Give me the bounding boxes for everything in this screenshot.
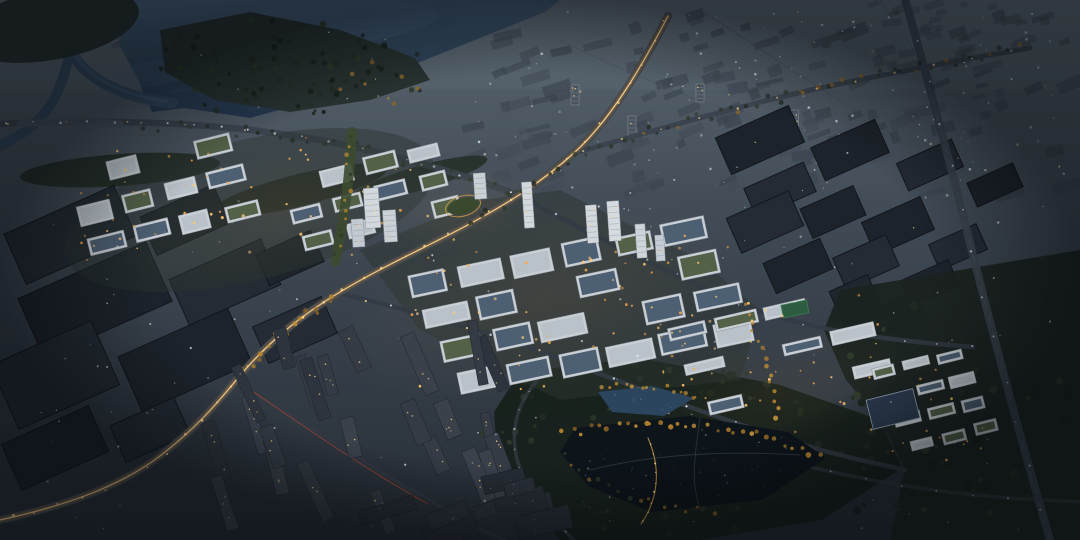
vignette-rect [0, 0, 1080, 540]
aerial-city-rendering [0, 0, 1080, 540]
aerial-render-canvas [0, 0, 1080, 540]
vignette [0, 0, 1080, 540]
